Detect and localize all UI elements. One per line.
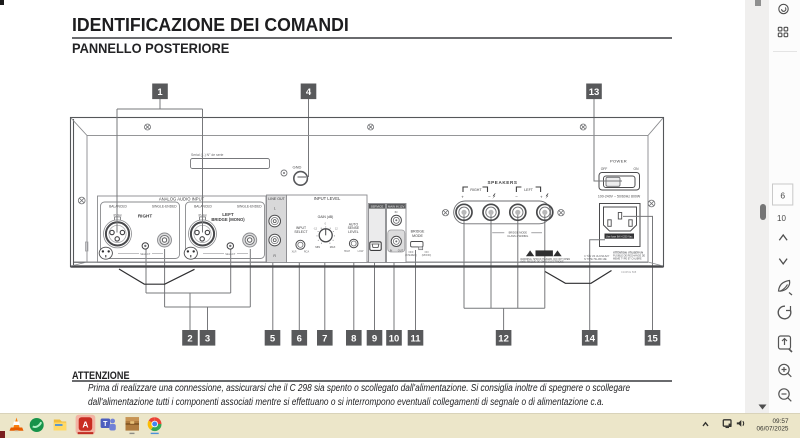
svg-text:LINE OUT: LINE OUT [268,197,285,201]
svg-text:6: 6 [297,334,302,345]
svg-text:10: 10 [777,214,786,223]
svg-text:SPEAKERS: SPEAKERS [487,180,517,185]
svg-text:8: 8 [351,334,356,345]
svg-text:AVIS: RISQUE DE CHOC ELECTRIQU: AVIS: RISQUE DE CHOC ELECTRIQUE [520,261,564,264]
svg-text:13: 13 [589,87,600,98]
svg-text:INPUT LEVEL: INPUT LEVEL [314,196,341,201]
svg-text:ON: ON [634,167,640,171]
svg-text:LEFT: LEFT [524,188,534,192]
svg-text:1: 1 [157,87,163,98]
svg-text:BRIDGE MODE: BRIDGE MODE [509,231,528,235]
svg-text:MIN: MIN [315,245,320,249]
svg-text:9: 9 [372,334,377,345]
svg-text:OUT: OUT [398,249,404,253]
svg-text:−: − [515,194,518,199]
svg-text:RIGHT: RIGHT [470,188,482,192]
svg-text:C1045 E 508: C1045 E 508 [621,270,637,274]
svg-text:L: L [274,207,276,211]
svg-text:SERVICE: SERVICE [371,205,384,209]
svg-text:15: 15 [647,334,658,345]
svg-text:MAIN IN 12V: MAIN IN 12V [388,205,404,209]
svg-text:BALANCED: BALANCED [109,204,127,208]
svg-text:BRIDGE: BRIDGE [411,229,425,233]
svg-text:OFF: OFF [601,167,608,171]
svg-text:SELECT: SELECT [140,252,151,256]
svg-text:Use fuse 6A H 250 Vac: Use fuse 6A H 250 Vac [606,234,633,238]
svg-text:11: 11 [410,334,421,345]
svg-text:12: 12 [498,334,509,345]
svg-text:N TYPE 7SL-BD 13E: N TYPE 7SL-BD 13E [584,258,607,261]
svg-text:GND: GND [293,164,302,169]
svg-text:+: + [540,194,543,199]
svg-text:14: 14 [584,334,595,345]
svg-text:IN: IN [390,249,393,253]
svg-text:R: R [273,254,276,258]
svg-text:BRIDGE (MONO): BRIDGE (MONO) [211,217,245,222]
svg-text:MODE: MODE [412,234,423,238]
svg-text:MEME TYPE ET CALIBRE: MEME TYPE ET CALIBRE [613,258,642,261]
svg-text:100-240V ~ 50/60Hz 800W: 100-240V ~ 50/60Hz 800W [598,195,641,199]
svg-text:HIGH: HIGH [344,250,350,253]
svg-text:RCA: RCA [304,251,310,254]
svg-text:09:57: 09:57 [773,418,789,425]
svg-text:SINGLE-ENDED: SINGLE-ENDED [152,204,177,208]
svg-text:POWER: POWER [610,159,627,164]
svg-text:5: 5 [270,334,276,345]
svg-text:LEVEL: LEVEL [348,230,359,234]
svg-text:10: 10 [389,334,400,345]
svg-text:7: 7 [322,334,327,345]
svg-text:−: − [488,194,491,199]
svg-text:ANALOG AUDIO INPUT: ANALOG AUDIO INPUT [159,197,205,202]
svg-text:LOW: LOW [358,250,364,253]
svg-text:T: T [103,421,108,428]
svg-text:06/07/2025: 06/07/2025 [757,426,789,433]
svg-text:SINGLE-ENDED: SINGLE-ENDED [237,204,262,208]
svg-text:GAIN (dB): GAIN (dB) [318,215,334,219]
svg-text:BALANCED: BALANCED [194,204,212,208]
svg-text:+: + [461,194,464,199]
svg-text:A: A [82,420,88,430]
svg-text:3: 3 [205,334,210,345]
svg-text:SELECT: SELECT [225,252,236,256]
svg-text:XLR: XLR [292,251,297,254]
svg-text:4: 4 [306,87,312,98]
svg-text:IN: IN [395,210,398,214]
svg-text:Serial (...) N° de serie: Serial (...) N° de serie [191,153,224,157]
svg-text:(MONO): (MONO) [422,254,432,257]
svg-text:RIGHT: RIGHT [138,214,152,219]
svg-text:CLASS 2 WIRING: CLASS 2 WIRING [507,234,528,238]
svg-text:2: 2 [187,334,192,345]
svg-text:(STEREO): (STEREO) [405,254,417,257]
svg-text:6: 6 [780,190,785,200]
svg-text:SELECT: SELECT [294,230,307,234]
svg-text:(PUSH): (PUSH) [113,213,122,217]
svg-text:MAX: MAX [330,245,336,249]
